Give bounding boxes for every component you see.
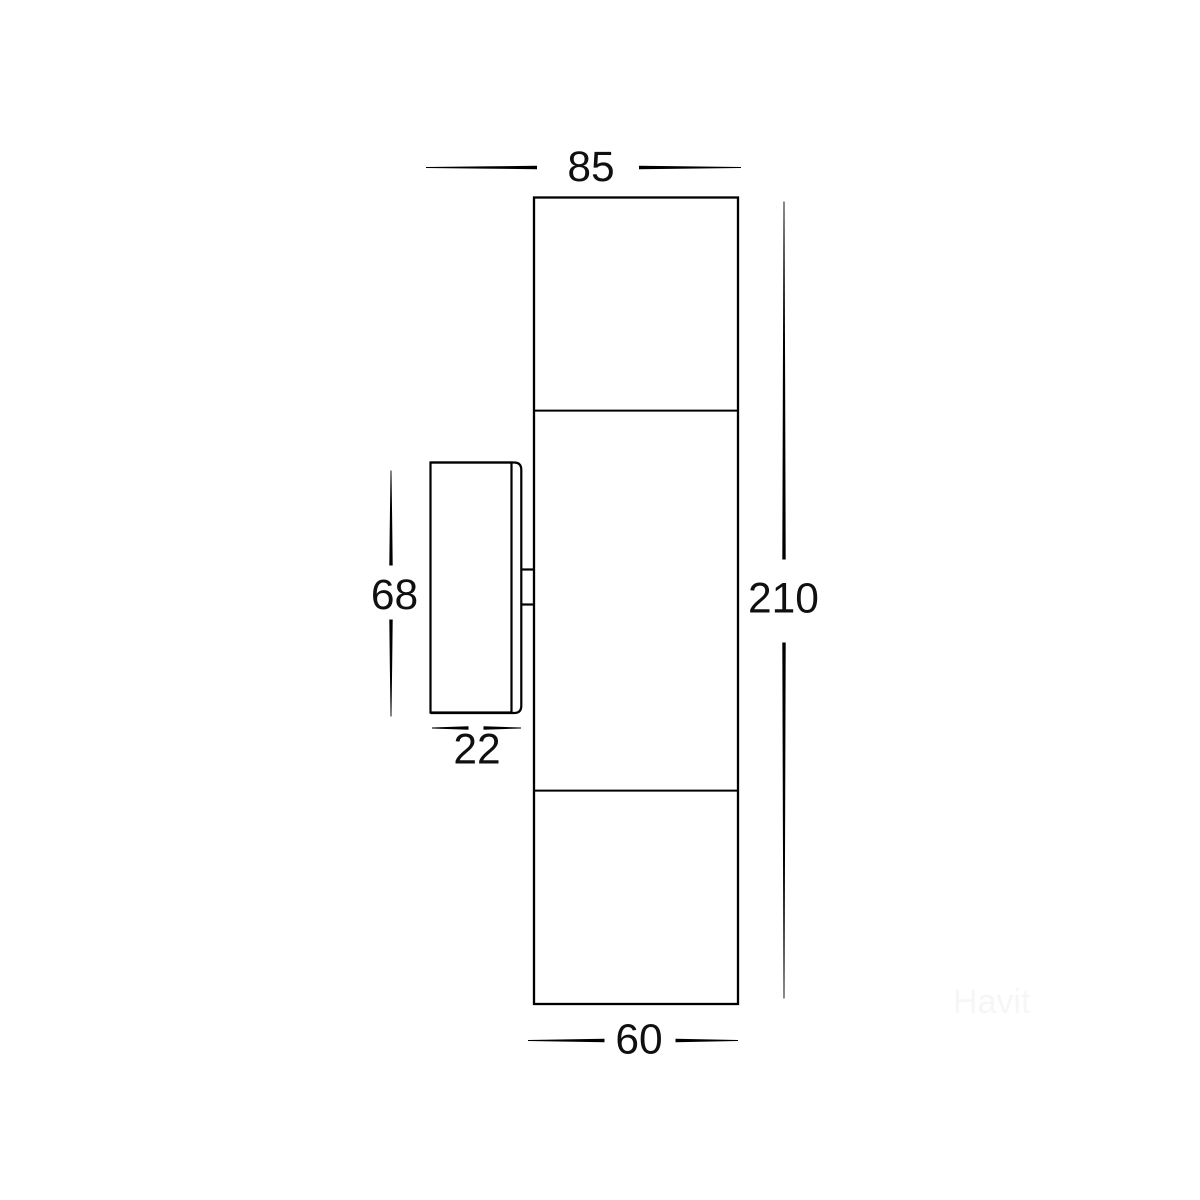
svg-text:210: 210 bbox=[748, 576, 819, 623]
svg-text:60: 60 bbox=[615, 1017, 662, 1064]
svg-text:85: 85 bbox=[567, 144, 614, 191]
svg-text:68: 68 bbox=[371, 572, 418, 619]
svg-text:22: 22 bbox=[453, 727, 500, 774]
svg-text:Havit: Havit bbox=[953, 983, 1031, 1021]
